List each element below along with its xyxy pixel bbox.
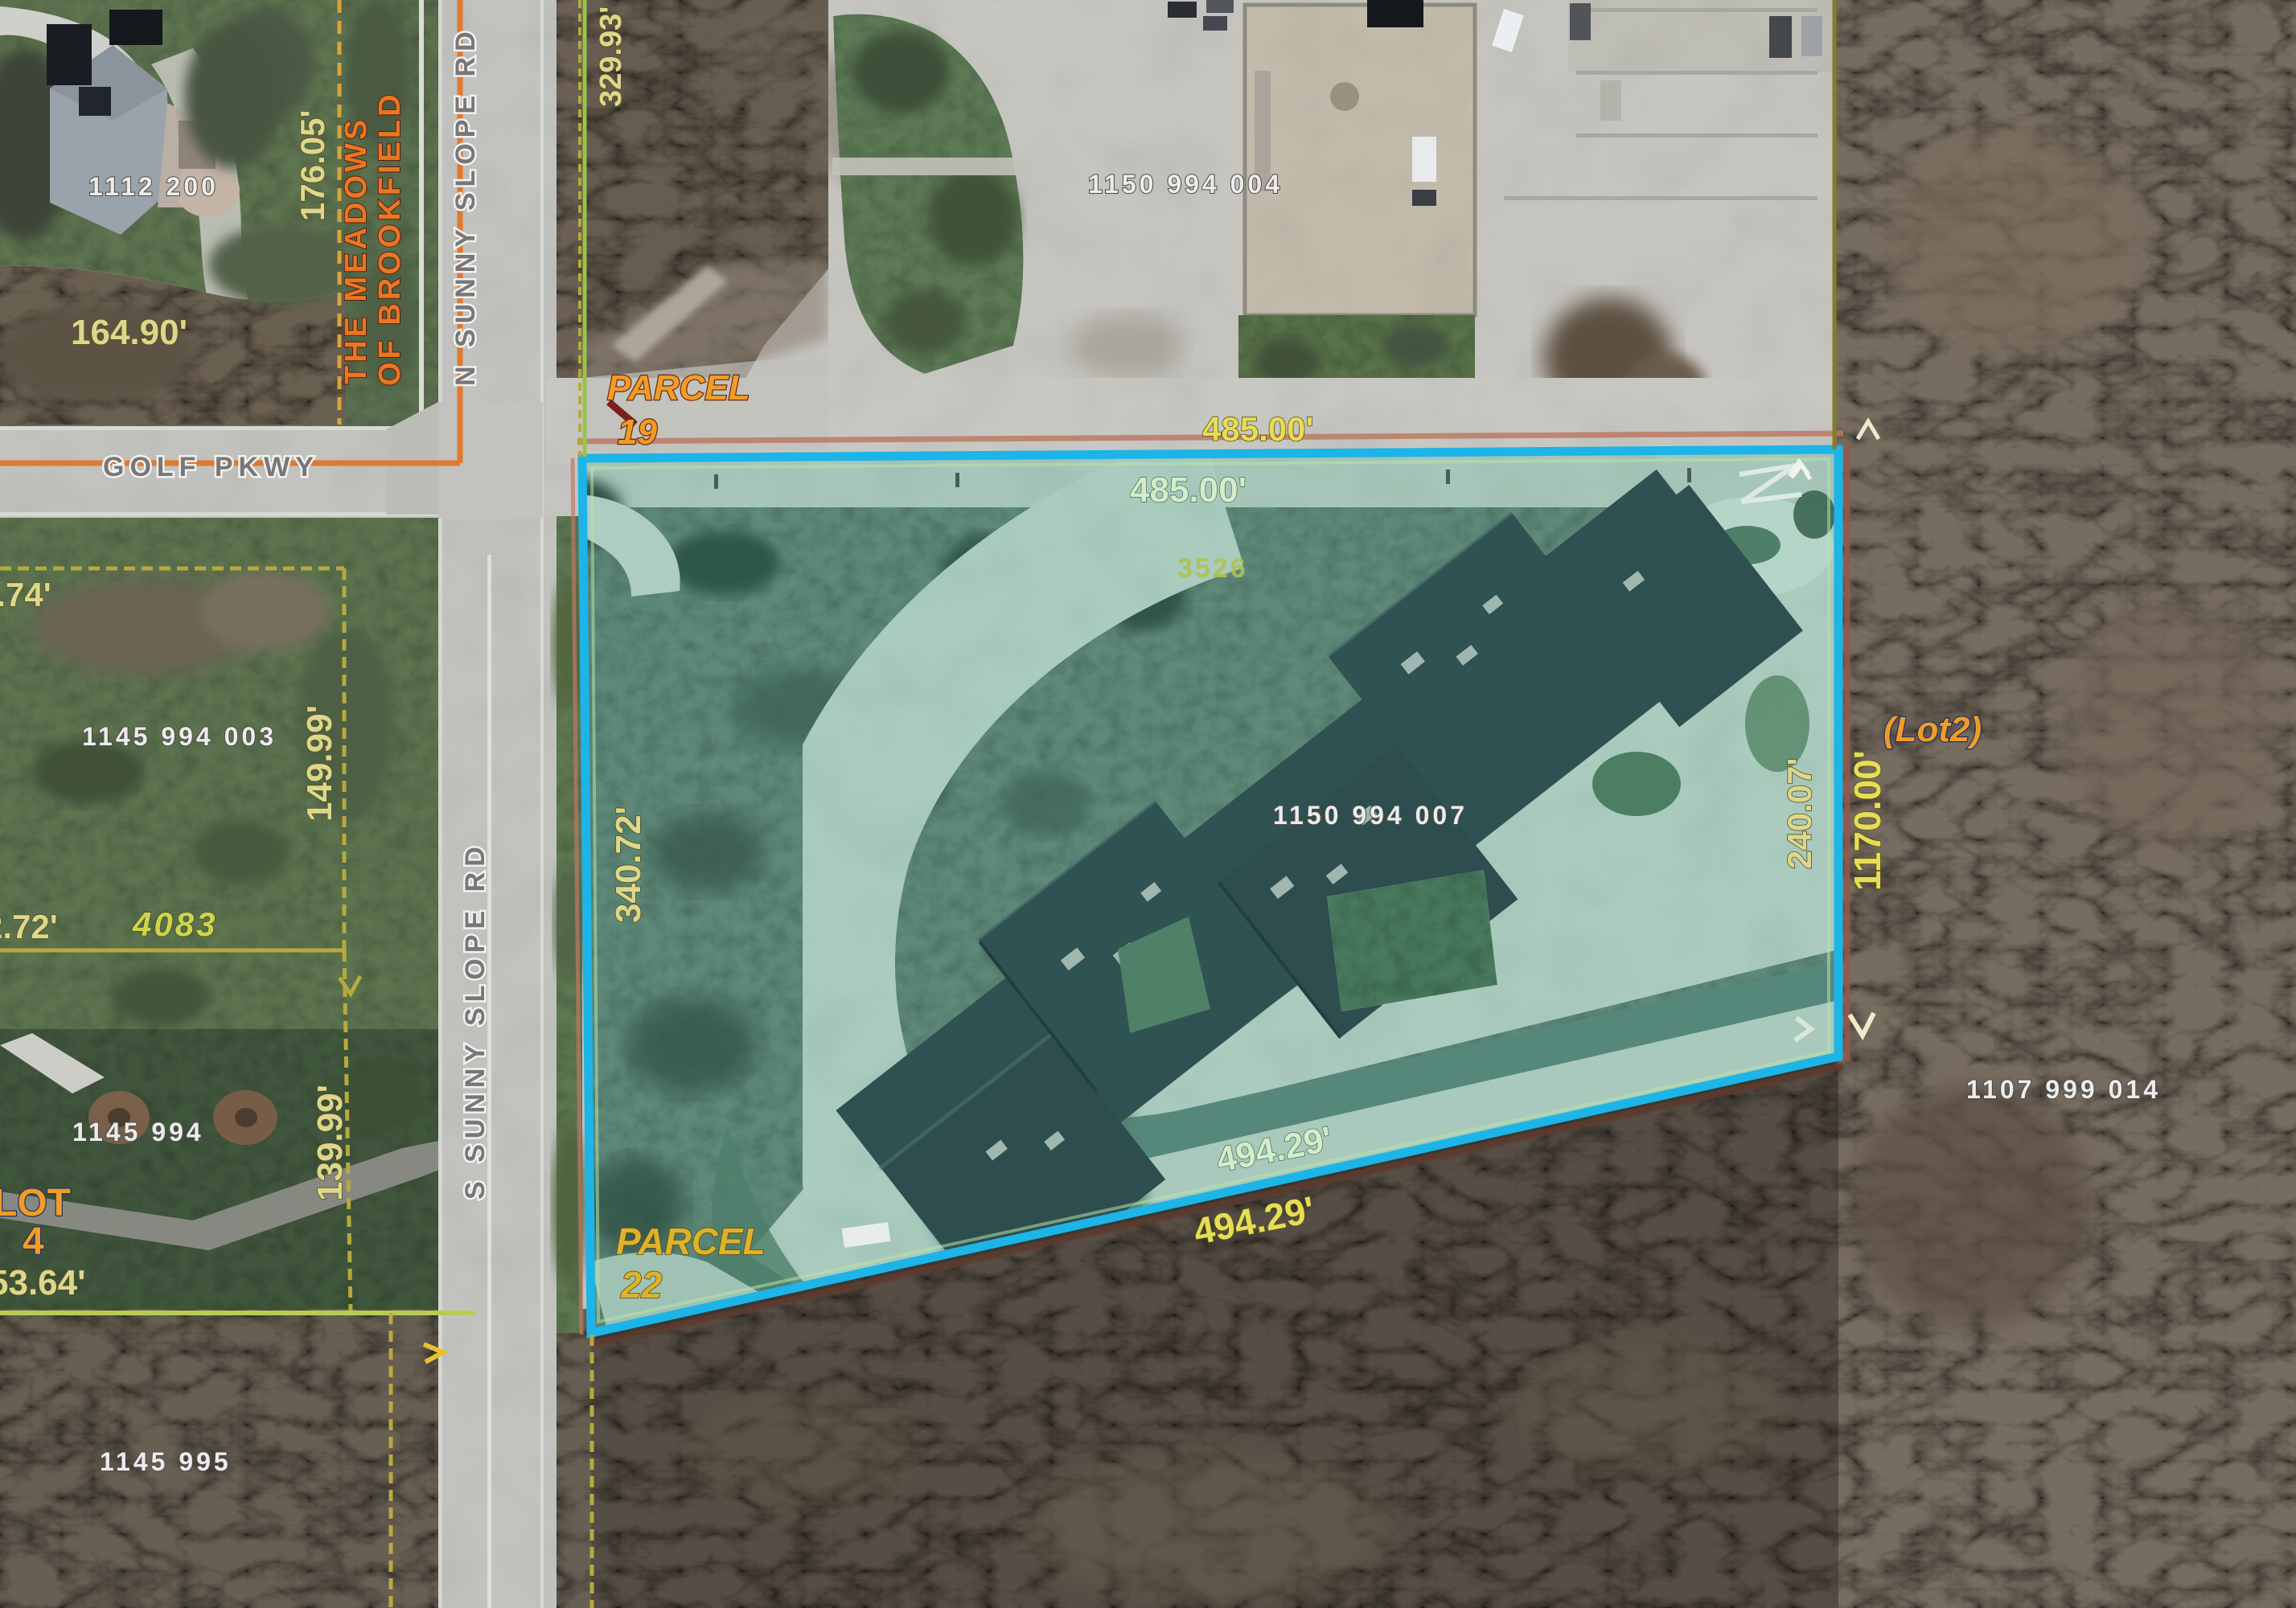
svg-text:4083: 4083 — [132, 905, 217, 943]
svg-text:1150 994 004: 1150 994 004 — [1088, 170, 1283, 199]
svg-text:139.99': 139.99' — [310, 1085, 350, 1201]
svg-text:(Lot2): (Lot2) — [1883, 710, 1982, 749]
svg-text:53.64': 53.64' — [0, 1263, 86, 1302]
svg-text:N SUNNY SLOPE RD: N SUNNY SLOPE RD — [450, 26, 481, 386]
svg-text:1145 994 003: 1145 994 003 — [82, 722, 277, 751]
svg-text:3526: 3526 — [1177, 553, 1248, 584]
svg-text:1145 994: 1145 994 — [72, 1118, 204, 1147]
svg-text:164.90': 164.90' — [71, 313, 187, 352]
svg-text:176.05': 176.05' — [294, 110, 331, 221]
svg-text:1145 995: 1145 995 — [100, 1447, 232, 1476]
svg-text:1112 200: 1112 200 — [88, 172, 219, 201]
svg-text:1.74': 1.74' — [0, 576, 51, 613]
svg-text:THE MEADOWS: THE MEADOWS — [339, 117, 373, 384]
svg-text:LOT: LOT — [0, 1182, 71, 1224]
svg-text:149.99': 149.99' — [300, 705, 339, 822]
svg-text:485.00': 485.00' — [1130, 470, 1247, 510]
svg-text:1107 999 014: 1107 999 014 — [1966, 1075, 2161, 1104]
svg-text:2.72': 2.72' — [0, 908, 58, 946]
svg-text:1170.00': 1170.00' — [1846, 750, 1888, 891]
svg-text:GOLF PKWY: GOLF PKWY — [103, 452, 319, 482]
svg-text:1150 994 007: 1150 994 007 — [1273, 801, 1468, 830]
svg-text:240.07': 240.07' — [1781, 758, 1818, 869]
svg-text:329.93': 329.93' — [594, 6, 628, 107]
svg-text:S SUNNY SLOPE RD: S SUNNY SLOPE RD — [460, 841, 491, 1200]
svg-text:PARCEL: PARCEL — [607, 368, 750, 408]
svg-text:PARCEL: PARCEL — [616, 1220, 766, 1262]
svg-text:22: 22 — [620, 1264, 663, 1306]
svg-text:OF BROOKFIELD: OF BROOKFIELD — [373, 91, 407, 386]
svg-text:485.00': 485.00' — [1202, 410, 1313, 448]
svg-text:4: 4 — [23, 1220, 44, 1263]
svg-text:19: 19 — [618, 412, 657, 452]
svg-text:340.72': 340.72' — [609, 806, 648, 923]
